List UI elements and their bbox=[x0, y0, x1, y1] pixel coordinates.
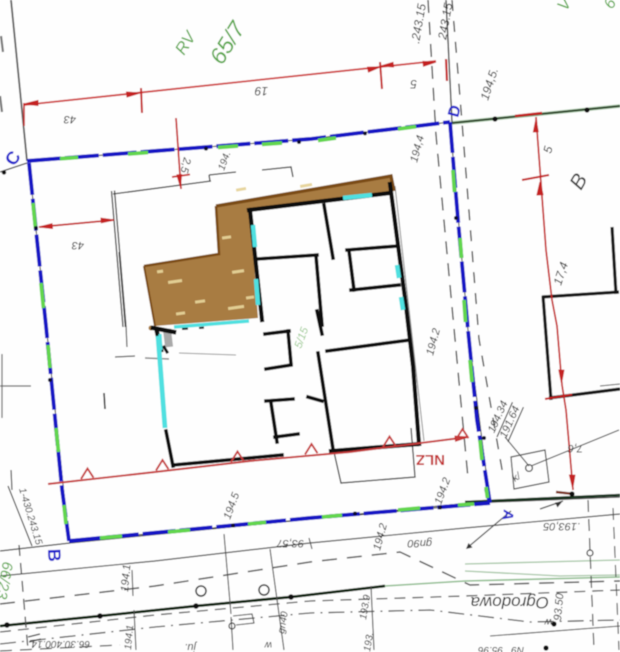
svg-text:93,57: 93,57 bbox=[276, 537, 304, 549]
svg-text:43: 43 bbox=[71, 239, 84, 251]
svg-text:NLZ: NLZ bbox=[416, 451, 445, 468]
svg-text:43: 43 bbox=[63, 113, 76, 125]
svg-text:19: 19 bbox=[254, 84, 268, 98]
svg-text:.193,05: .193,05 bbox=[542, 520, 580, 532]
svg-text:w: w bbox=[264, 639, 272, 650]
svg-text:7,6: 7,6 bbox=[567, 442, 583, 454]
svg-text:w: w bbox=[544, 616, 552, 627]
svg-text:Ogrodowa: Ogrodowa bbox=[471, 593, 549, 612]
svg-text:5: 5 bbox=[410, 77, 417, 91]
svg-text:194.1: 194.1 bbox=[123, 624, 136, 650]
svg-text:N9: N9 bbox=[511, 644, 524, 652]
svg-text:gn90: gn90 bbox=[407, 537, 432, 549]
svg-text:95.96: 95.96 bbox=[478, 644, 503, 652]
svg-text:93.50: 93.50 bbox=[552, 592, 566, 621]
svg-text:66.30.400.14: 66.30.400.14 bbox=[31, 638, 90, 649]
svg-text:ju.: ju. bbox=[184, 641, 198, 652]
svg-text:194.1: 194.1 bbox=[119, 564, 133, 592]
svg-text:B: B bbox=[44, 548, 64, 562]
